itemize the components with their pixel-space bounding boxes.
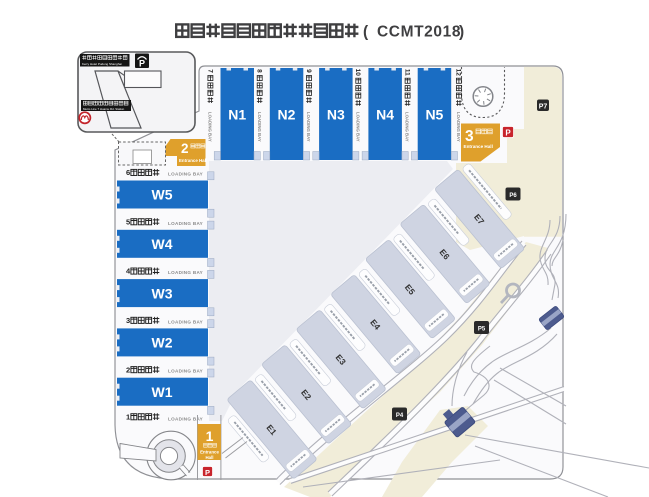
svg-text:3: 3 [465, 128, 474, 145]
svg-text:LOADING BAY: LOADING BAY [405, 112, 410, 142]
svg-text:8: 8 [256, 69, 263, 73]
svg-text:LOADING BAY: LOADING BAY [168, 270, 203, 275]
svg-text:9: 9 [305, 69, 312, 73]
svg-text:N4: N4 [376, 107, 394, 123]
svg-text:2: 2 [126, 365, 130, 374]
svg-text:N5: N5 [425, 107, 443, 123]
svg-text:10: 10 [354, 69, 361, 77]
svg-text:1: 1 [206, 428, 214, 444]
svg-text:2: 2 [181, 141, 189, 156]
svg-text:LOADING BAY: LOADING BAY [168, 319, 203, 324]
svg-text:P: P [205, 468, 210, 477]
svg-text:P: P [139, 59, 145, 69]
svg-text:P5: P5 [478, 326, 486, 332]
svg-text:N3: N3 [327, 107, 345, 123]
svg-text:CCMT2018: CCMT2018 [377, 24, 461, 41]
svg-text:P7: P7 [539, 103, 548, 110]
svg-text:LOADING BAY: LOADING BAY [306, 112, 311, 142]
svg-text:P6: P6 [509, 193, 517, 199]
svg-text:LOADING BAY: LOADING BAY [168, 221, 203, 226]
svg-text:LOADING BAY: LOADING BAY [456, 112, 461, 142]
svg-text:P: P [505, 128, 511, 137]
svg-text:Kerry Hotel Pudong Shanghai: Kerry Hotel Pudong Shanghai [82, 62, 122, 66]
svg-text:): ) [459, 24, 464, 41]
svg-text:Metro Line 7 Huamu Rd. Statio: Metro Line 7 Huamu Rd. Station [83, 107, 125, 111]
svg-text:LOADING BAY: LOADING BAY [257, 112, 262, 142]
svg-text:W2: W2 [152, 335, 173, 351]
svg-text:(: ( [363, 24, 369, 41]
svg-text:6: 6 [126, 168, 130, 177]
svg-text:Entrance: Entrance [200, 450, 219, 455]
svg-text:LOADING BAY: LOADING BAY [355, 112, 360, 142]
svg-text:LOADING BAY: LOADING BAY [168, 172, 203, 177]
svg-text:W3: W3 [152, 285, 173, 301]
svg-text:5: 5 [126, 217, 130, 226]
svg-text:N1: N1 [228, 107, 246, 123]
svg-text:N2: N2 [278, 107, 296, 123]
svg-text:3: 3 [126, 316, 130, 325]
svg-text:W5: W5 [152, 187, 173, 203]
svg-text:LOADING BAY: LOADING BAY [208, 112, 213, 142]
svg-text:Entrance Hall: Entrance Hall [179, 158, 207, 163]
svg-text:11: 11 [403, 69, 410, 76]
svg-text:W4: W4 [152, 236, 173, 252]
svg-text:Entrance Hall: Entrance Hall [464, 144, 493, 149]
svg-text:P4: P4 [396, 413, 404, 419]
svg-text:1: 1 [126, 412, 130, 421]
svg-text:Hall: Hall [205, 455, 213, 460]
svg-text:LOADING BAY: LOADING BAY [168, 369, 203, 374]
svg-text:7: 7 [206, 69, 213, 73]
svg-text:W1: W1 [152, 384, 173, 400]
svg-text:12: 12 [455, 69, 462, 77]
